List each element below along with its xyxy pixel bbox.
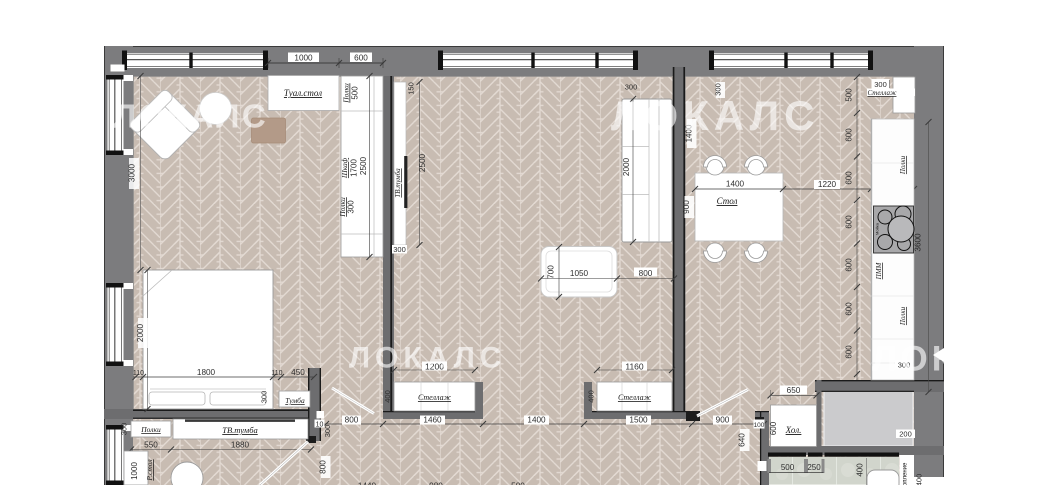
svg-text:300: 300 [323,425,332,438]
svg-text:500: 500 [781,463,795,472]
svg-text:400: 400 [915,474,924,485]
svg-text:400: 400 [587,390,596,403]
svg-text:Стеллаж: Стеллаж [868,89,897,97]
svg-text:600: 600 [845,128,854,142]
svg-text:400: 400 [856,463,865,477]
svg-text:ЛОКАЛС: ЛОКАЛС [611,92,819,139]
svg-text:Р.стол: Р.стол [145,459,154,481]
svg-text:Стеллаж: Стеллаж [418,393,452,402]
svg-text:1800: 1800 [197,368,216,377]
svg-text:300: 300 [260,391,269,404]
svg-text:300: 300 [874,80,887,89]
svg-text:ПММ: ПММ [875,261,883,280]
svg-text:150: 150 [407,82,416,95]
svg-text:1460: 1460 [423,416,442,425]
svg-text:Тумба: Тумба [285,396,305,405]
svg-text:110: 110 [271,370,282,377]
svg-text:ЛОКАЛС: ЛОКАЛС [872,340,1039,379]
svg-text:800: 800 [319,460,328,474]
svg-text:600: 600 [769,421,778,435]
svg-text:1050: 1050 [570,269,589,278]
svg-text:Отопление: Отопление [903,462,909,485]
svg-text:900: 900 [682,200,691,214]
svg-text:550: 550 [144,441,158,450]
svg-text:600: 600 [845,215,854,229]
svg-text:600: 600 [845,171,854,185]
svg-text:450: 450 [291,368,305,377]
svg-text:2500: 2500 [359,156,368,175]
svg-text:110: 110 [133,370,144,377]
svg-text:Стол: Стол [717,196,738,206]
svg-text:1000: 1000 [130,462,139,480]
svg-text:2000: 2000 [136,323,145,342]
svg-text:3000: 3000 [128,163,137,182]
svg-text:Полки: Полки [899,306,907,326]
svg-text:400: 400 [383,390,392,403]
svg-text:2500: 2500 [418,153,427,172]
svg-text:ТВ.тумба: ТВ.тумба [394,168,402,198]
svg-text:800: 800 [639,269,653,278]
svg-text:700: 700 [547,265,556,279]
svg-text:300: 300 [347,200,356,214]
svg-text:980: 980 [429,482,443,485]
svg-text:100: 100 [754,422,765,429]
svg-text:1400: 1400 [527,416,546,425]
svg-text:500: 500 [511,482,525,485]
svg-text:3600: 3600 [914,233,923,252]
svg-text:200: 200 [899,430,912,439]
svg-text:Полки: Полки [140,425,161,434]
svg-text:800: 800 [345,416,359,425]
svg-text:900: 900 [716,416,730,425]
svg-text:600: 600 [845,345,854,359]
svg-text:500: 500 [845,88,854,102]
svg-text:Туал.стол: Туал.стол [284,88,322,98]
svg-text:600: 600 [845,302,854,316]
svg-text:2000: 2000 [622,157,631,176]
svg-text:600: 600 [354,54,368,63]
svg-text:640: 640 [738,433,747,447]
svg-text:600: 600 [845,258,854,272]
svg-text:1700: 1700 [350,159,359,177]
svg-text:ТВ.тумба: ТВ.тумба [222,425,257,435]
svg-text:650: 650 [787,386,801,395]
svg-text:300: 300 [393,245,406,254]
svg-text:1400: 1400 [726,180,745,189]
svg-text:500: 500 [351,86,360,100]
svg-text:Мойка: Мойка [875,222,880,235]
svg-text:300: 300 [625,83,638,92]
svg-text:1160: 1160 [625,362,644,372]
svg-text:Полки: Полки [342,83,351,104]
svg-text:Стеллаж: Стеллаж [618,393,652,402]
svg-text:Шкаф: Шкаф [340,157,349,179]
svg-text:Хол.: Хол. [785,425,802,435]
svg-text:ЛОКАЛС: ЛОКАЛС [113,98,268,135]
svg-text:1500: 1500 [629,416,648,425]
svg-text:1220: 1220 [818,180,837,189]
svg-text:1880: 1880 [231,441,250,450]
svg-text:Полки: Полки [899,155,907,175]
svg-text:ЛОКАЛС: ЛОКАЛС [349,342,506,375]
svg-text:1000: 1000 [294,54,313,63]
svg-text:300: 300 [120,423,129,436]
svg-text:250: 250 [807,463,821,472]
svg-text:1440: 1440 [358,482,377,485]
